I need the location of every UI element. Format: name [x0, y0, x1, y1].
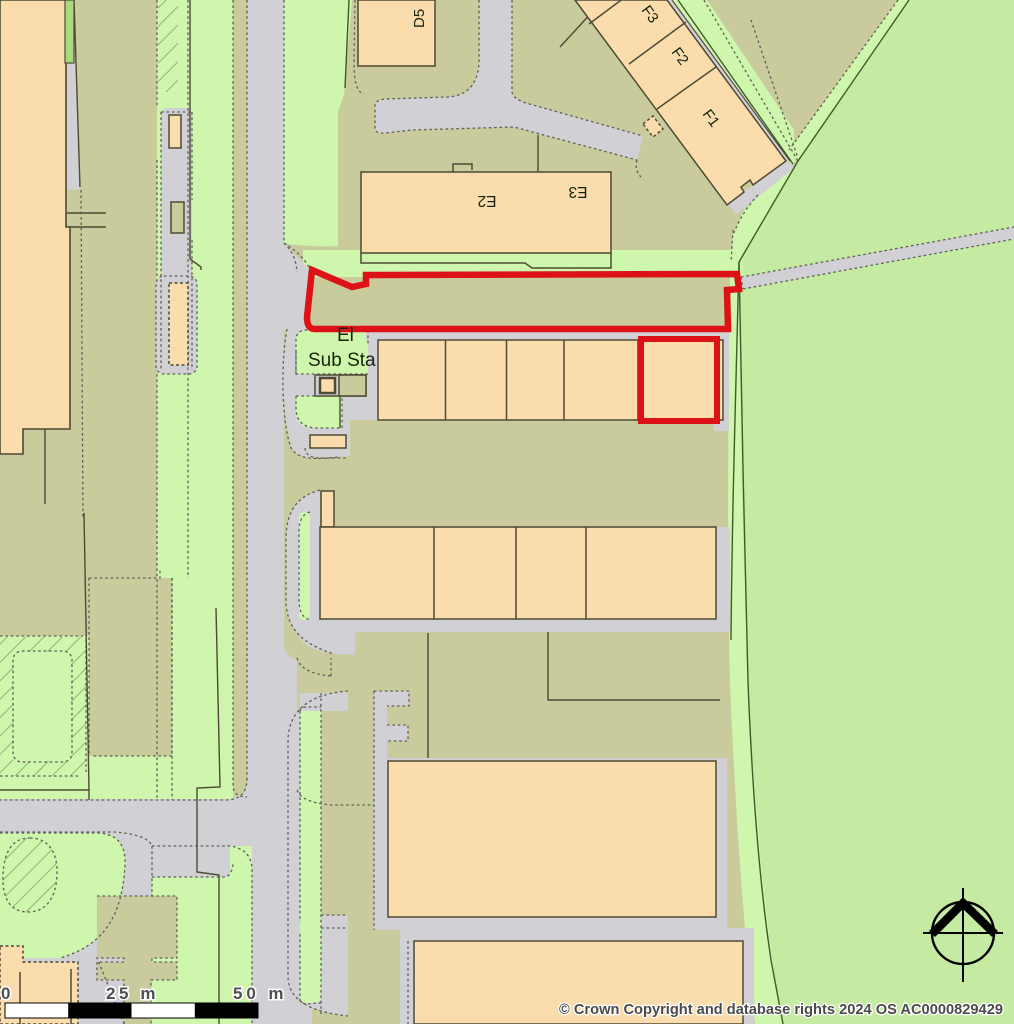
svg-text:Sub Sta: Sub Sta	[308, 350, 376, 371]
svg-text:0: 0	[1, 984, 11, 1003]
svg-text:El: El	[337, 325, 354, 346]
svg-text:© Crown Copyright and database: © Crown Copyright and database rights 20…	[559, 1001, 1003, 1018]
svg-text:D5: D5	[411, 9, 428, 28]
svg-text:E2: E2	[478, 192, 497, 209]
svg-text:E3: E3	[569, 183, 588, 200]
